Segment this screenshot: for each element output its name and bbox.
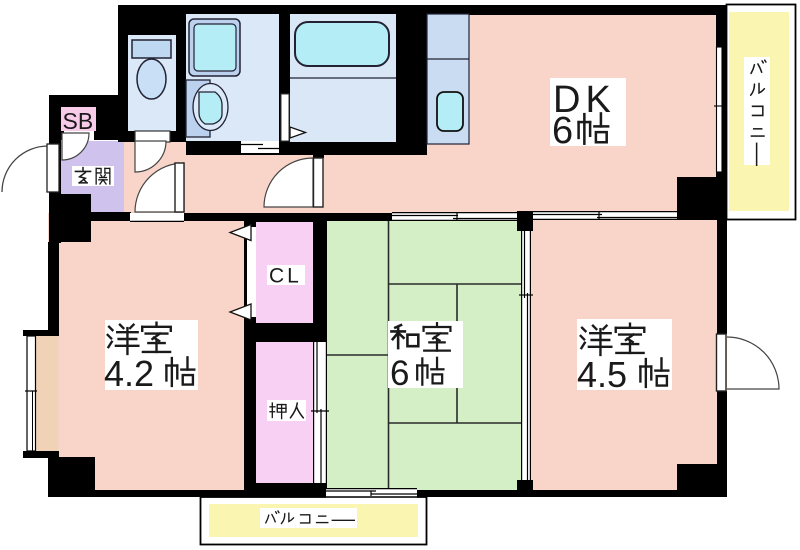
svg-text:4.2: 4.2 bbox=[104, 353, 154, 394]
svg-text:6: 6 bbox=[552, 110, 573, 152]
svg-text:4.5: 4.5 bbox=[577, 354, 627, 395]
svg-text:CL: CL bbox=[269, 265, 302, 288]
svg-text:6: 6 bbox=[390, 354, 409, 393]
svg-text:SB: SB bbox=[63, 108, 94, 134]
